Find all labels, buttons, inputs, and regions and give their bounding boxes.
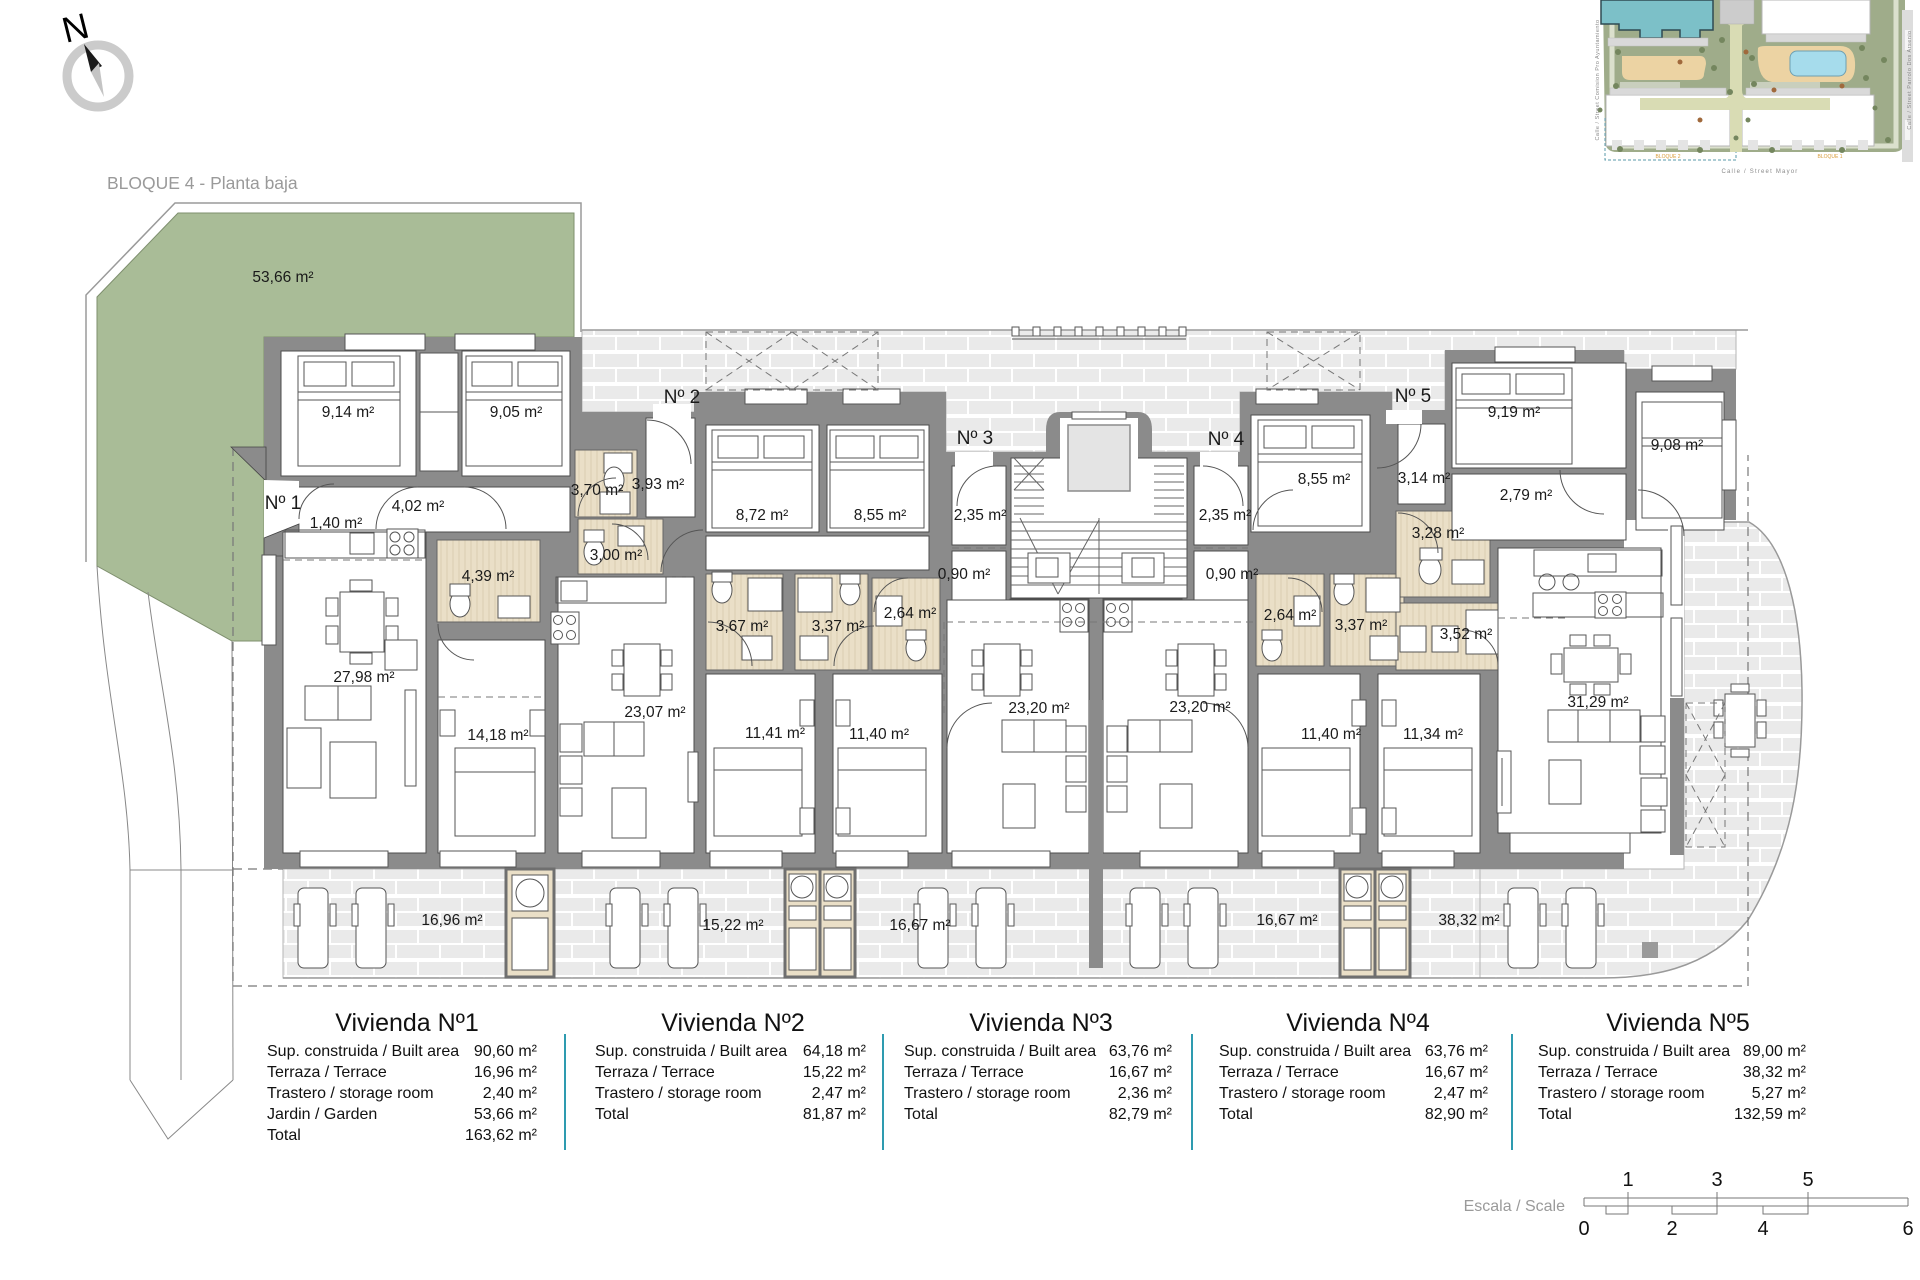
svg-text:Total: Total [595,1106,629,1123]
svg-text:16,67 m²: 16,67 m² [1109,1064,1173,1081]
svg-text:Jardin / Garden: Jardin / Garden [267,1106,377,1123]
svg-text:8,55 m²: 8,55 m² [1298,471,1351,488]
svg-text:Sup. construida / Built area: Sup. construida / Built area [595,1043,787,1060]
svg-text:Nº 3: Nº 3 [957,428,994,449]
svg-text:Vivienda Nº4: Vivienda Nº4 [1286,1009,1430,1037]
svg-text:15,22 m²: 15,22 m² [702,917,763,934]
svg-text:2,35 m²: 2,35 m² [954,507,1007,524]
svg-text:16,96 m²: 16,96 m² [474,1064,538,1081]
svg-text:5: 5 [1802,1169,1813,1191]
svg-text:16,67 m²: 16,67 m² [1256,912,1317,929]
svg-text:31,29 m²: 31,29 m² [1567,694,1628,711]
svg-text:2,64 m²: 2,64 m² [1264,607,1317,624]
svg-text:23,07 m²: 23,07 m² [624,704,685,721]
svg-text:Trastero / storage room: Trastero / storage room [595,1085,762,1102]
svg-text:3: 3 [1711,1169,1722,1191]
svg-text:11,40 m²: 11,40 m² [849,726,909,743]
svg-text:15,22 m²: 15,22 m² [803,1064,867,1081]
svg-text:8,72 m²: 8,72 m² [736,507,789,524]
svg-text:Sup. construida / Built area: Sup. construida / Built area [1219,1043,1411,1060]
svg-text:Total: Total [1538,1106,1572,1123]
svg-text:3,28 m²: 3,28 m² [1412,525,1465,542]
svg-text:Terraza / Terrace: Terraza / Terrace [595,1064,715,1081]
svg-text:2,64 m²: 2,64 m² [884,605,937,622]
svg-text:1,40 m²: 1,40 m² [310,515,363,532]
svg-text:3,70 m²: 3,70 m² [571,482,624,499]
svg-text:Sup. construida / Built area: Sup. construida / Built area [904,1043,1096,1060]
svg-text:3,37 m²: 3,37 m² [1335,617,1388,634]
svg-text:4,02 m²: 4,02 m² [392,498,445,515]
svg-text:2,79 m²: 2,79 m² [1500,487,1553,504]
svg-text:2,36 m²: 2,36 m² [1118,1085,1173,1102]
svg-text:9,05 m²: 9,05 m² [490,404,543,421]
svg-text:89,00 m²: 89,00 m² [1743,1043,1807,1060]
svg-text:82,90 m²: 82,90 m² [1425,1106,1489,1123]
svg-text:Nº 5: Nº 5 [1395,386,1432,407]
svg-text:Trastero / storage room: Trastero / storage room [1219,1085,1386,1102]
svg-text:9,19 m²: 9,19 m² [1488,404,1541,421]
svg-text:23,20 m²: 23,20 m² [1169,699,1230,716]
svg-text:8,55 m²: 8,55 m² [854,507,907,524]
svg-text:Terraza / Terrace: Terraza / Terrace [1538,1064,1658,1081]
svg-text:2,47 m²: 2,47 m² [812,1085,867,1102]
svg-text:11,40 m²: 11,40 m² [1301,726,1361,743]
svg-text:BLOQUE 4 - Planta baja: BLOQUE 4 - Planta baja [107,173,298,193]
svg-text:3,67 m²: 3,67 m² [716,618,769,635]
svg-text:Sup. construida / Built area: Sup. construida / Built area [1538,1043,1730,1060]
svg-text:9,14 m²: 9,14 m² [322,404,375,421]
svg-text:BLOQUE 2: BLOQUE 2 [1655,154,1680,160]
svg-text:Total: Total [904,1106,938,1123]
svg-text:Trastero / storage room: Trastero / storage room [1538,1085,1705,1102]
svg-text:4,39 m²: 4,39 m² [462,568,515,585]
svg-text:Terraza / Terrace: Terraza / Terrace [267,1064,387,1081]
svg-text:0,90 m²: 0,90 m² [1206,566,1259,583]
svg-text:2,35 m²: 2,35 m² [1199,507,1252,524]
svg-text:Calle / Street Comision Pro Ay: Calle / Street Comision Pro Ayuntamiento [1595,19,1601,140]
svg-text:Trastero / storage room: Trastero / storage room [904,1085,1071,1102]
svg-text:Vivienda Nº3: Vivienda Nº3 [969,1009,1112,1037]
svg-text:3,14 m²: 3,14 m² [1398,470,1451,487]
svg-text:BLOQUE 1: BLOQUE 1 [1817,154,1842,160]
svg-text:2: 2 [1666,1218,1677,1240]
svg-text:Calle / Street Parrolo Dos Ars: Calle / Street Parrolo Dos Arsenio [1907,30,1913,129]
svg-text:Vivienda Nº1: Vivienda Nº1 [335,1009,478,1037]
svg-text:Trastero / storage room: Trastero / storage room [267,1085,434,1102]
svg-text:0: 0 [1578,1218,1589,1240]
svg-text:16,67 m²: 16,67 m² [889,917,950,934]
svg-text:23,20 m²: 23,20 m² [1008,700,1069,717]
svg-text:64,18 m²: 64,18 m² [803,1043,867,1060]
svg-text:Terraza / Terrace: Terraza / Terrace [1219,1064,1339,1081]
svg-text:Total: Total [267,1127,301,1144]
svg-text:3,37 m²: 3,37 m² [812,618,865,635]
svg-text:Vivienda Nº5: Vivienda Nº5 [1606,1009,1749,1037]
svg-text:63,76 m²: 63,76 m² [1425,1043,1489,1060]
svg-text:81,87 m²: 81,87 m² [803,1106,867,1123]
svg-text:63,76 m²: 63,76 m² [1109,1043,1173,1060]
svg-text:38,32 m²: 38,32 m² [1438,912,1499,929]
svg-text:Nº 4: Nº 4 [1208,429,1245,450]
svg-text:132,59 m²: 132,59 m² [1734,1106,1807,1123]
svg-text:163,62 m²: 163,62 m² [465,1127,538,1144]
svg-text:16,96 m²: 16,96 m² [421,912,482,929]
svg-text:14,18 m²: 14,18 m² [467,727,528,744]
svg-text:5,27 m²: 5,27 m² [1752,1085,1807,1102]
svg-text:Total: Total [1219,1106,1253,1123]
svg-text:53,66 m²: 53,66 m² [252,269,313,286]
svg-text:Terraza / Terrace: Terraza / Terrace [904,1064,1024,1081]
svg-text:53,66 m²: 53,66 m² [474,1106,538,1123]
svg-text:90,60 m²: 90,60 m² [474,1043,538,1060]
svg-text:Nº 1: Nº 1 [265,493,302,514]
svg-text:4: 4 [1757,1218,1768,1240]
svg-text:27,98 m²: 27,98 m² [333,669,394,686]
svg-text:38,32 m²: 38,32 m² [1743,1064,1807,1081]
svg-text:2,47 m²: 2,47 m² [1434,1085,1489,1102]
svg-text:Escala / Scale: Escala / Scale [1464,1198,1565,1215]
svg-text:Calle / Street Mayor: Calle / Street Mayor [1721,169,1798,175]
svg-text:9,08 m²: 9,08 m² [1651,437,1704,454]
svg-text:11,41 m²: 11,41 m² [745,725,805,742]
svg-text:1: 1 [1622,1169,1633,1191]
svg-text:3,00 m²: 3,00 m² [590,547,643,564]
svg-text:Sup. construida / Built area: Sup. construida / Built area [267,1043,459,1060]
svg-text:6: 6 [1902,1218,1913,1240]
svg-text:3,52 m²: 3,52 m² [1440,626,1493,643]
svg-text:3,93 m²: 3,93 m² [632,476,685,493]
svg-text:16,67 m²: 16,67 m² [1425,1064,1489,1081]
svg-text:Nº 2: Nº 2 [664,387,701,408]
svg-text:Vivienda Nº2: Vivienda Nº2 [661,1009,804,1037]
svg-text:82,79 m²: 82,79 m² [1109,1106,1173,1123]
svg-text:11,34 m²: 11,34 m² [1403,726,1463,743]
svg-text:2,40 m²: 2,40 m² [483,1085,538,1102]
svg-text:0,90 m²: 0,90 m² [938,566,991,583]
